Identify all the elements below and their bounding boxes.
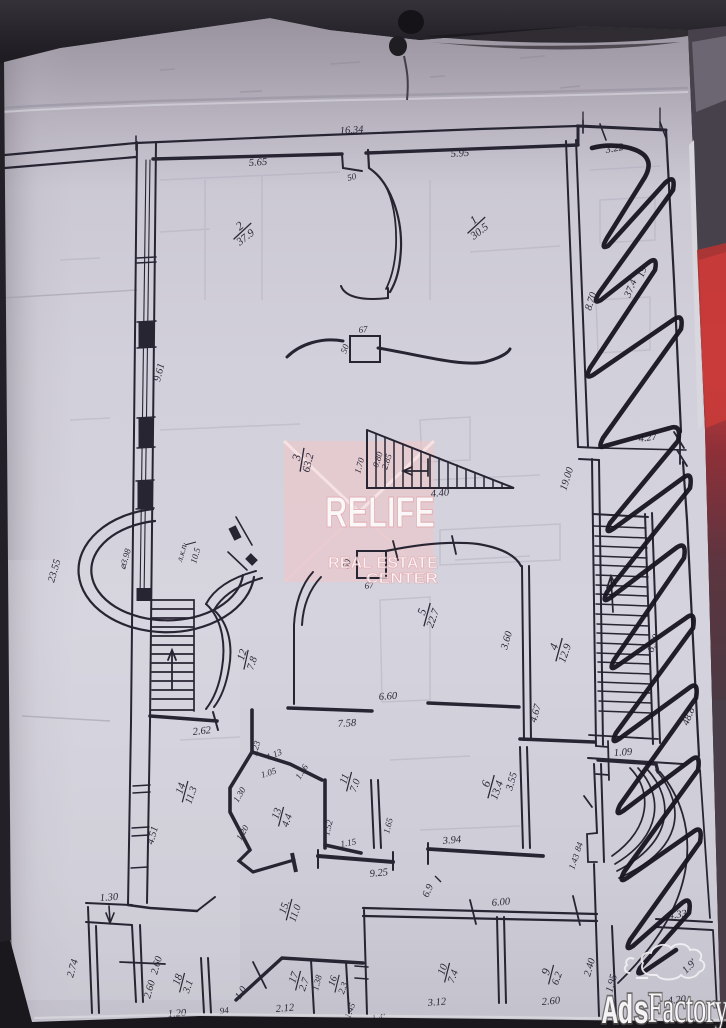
svg-text:5.65: 5.65 <box>248 157 267 169</box>
svg-text:Factory: Factory <box>648 985 726 1028</box>
svg-text:2.62: 2.62 <box>192 725 212 738</box>
svg-text:2.12: 2.12 <box>275 1002 295 1015</box>
svg-text:9.25: 9.25 <box>369 867 388 880</box>
svg-text:Ads: Ads <box>602 991 649 1028</box>
svg-text:3.94: 3.94 <box>441 834 462 847</box>
svg-text:6.60: 6.60 <box>378 691 398 703</box>
svg-text:5.95: 5.95 <box>450 148 469 160</box>
svg-text:1.09: 1.09 <box>613 747 633 759</box>
svg-text:CENTER: CENTER <box>366 570 438 587</box>
svg-text:3.12: 3.12 <box>426 996 447 1009</box>
svg-text:1.30: 1.30 <box>99 892 119 904</box>
svg-text:2.60: 2.60 <box>541 995 561 1008</box>
svg-text:RELIFE: RELIFE <box>325 488 435 537</box>
svg-text:16.34: 16.34 <box>339 124 364 137</box>
svg-text:7.58: 7.58 <box>337 718 357 730</box>
svg-text:6.00: 6.00 <box>491 896 511 909</box>
